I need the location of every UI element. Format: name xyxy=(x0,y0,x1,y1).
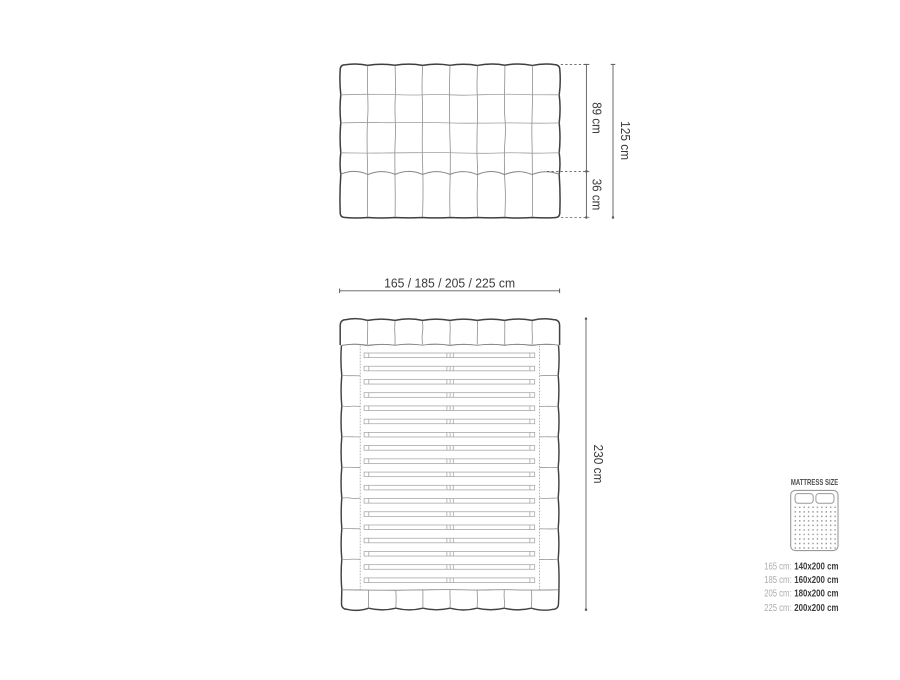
svg-text:125 cm: 125 cm xyxy=(618,121,632,160)
svg-text:230 cm: 230 cm xyxy=(591,445,605,484)
svg-text:180x200 cm: 180x200 cm xyxy=(794,589,838,600)
svg-text:MATTRESS SIZE: MATTRESS SIZE xyxy=(791,477,839,487)
svg-text:140x200 cm: 140x200 cm xyxy=(794,562,838,573)
svg-text:225 cm:: 225 cm: xyxy=(764,603,791,614)
svg-text:165 / 185 / 205 / 225 cm: 165 / 185 / 205 / 225 cm xyxy=(384,277,515,291)
svg-text:36 cm: 36 cm xyxy=(590,179,604,211)
svg-text:89 cm: 89 cm xyxy=(590,102,604,134)
svg-text:160x200 cm: 160x200 cm xyxy=(794,575,838,586)
svg-text:185 cm:: 185 cm: xyxy=(764,575,791,586)
svg-text:165 cm:: 165 cm: xyxy=(764,562,791,573)
svg-text:205 cm:: 205 cm: xyxy=(764,589,791,600)
svg-text:200x200 cm: 200x200 cm xyxy=(794,603,838,614)
